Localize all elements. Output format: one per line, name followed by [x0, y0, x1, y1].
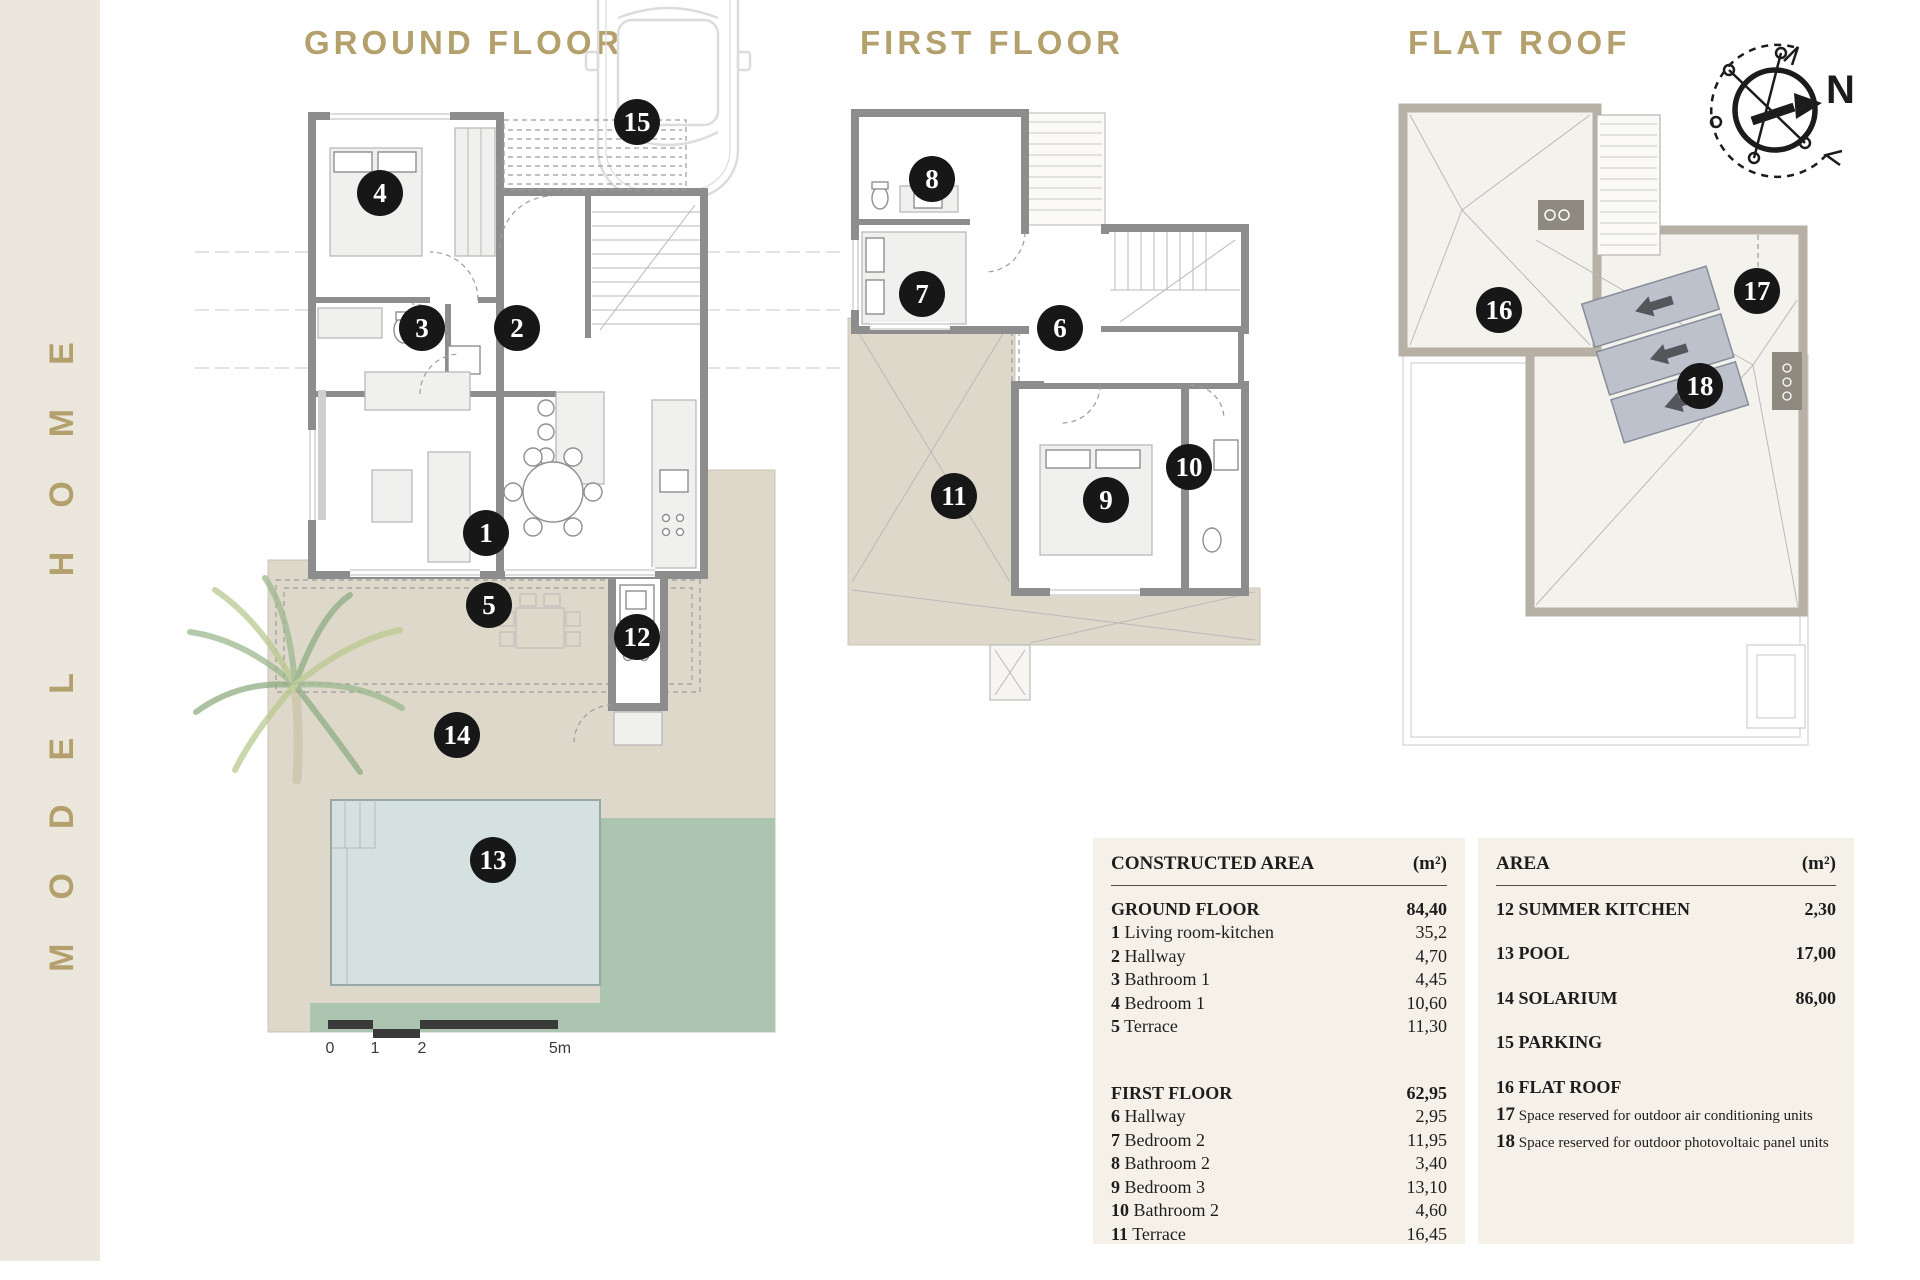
first-floor-plan: [840, 80, 1290, 720]
floorplan-sheet: MODEL HOME GROUND FLOOR FIRST FLOOR FLAT…: [0, 0, 1920, 1280]
room-marker-9-first-bedroom-3: 9: [1083, 477, 1129, 523]
flat-roof-title: FLAT ROOF: [1408, 24, 1630, 62]
room-marker-17-roof-ac-space: 17: [1734, 268, 1780, 314]
table-row: 5 Terrace11,30: [1111, 1015, 1447, 1039]
table-title: AREA: [1496, 852, 1550, 876]
brand-logo: MODEL HOME: [20, 230, 104, 1040]
constructed-table-body: GROUND FLOOR84,401 Living room-kitchen35…: [1111, 898, 1447, 1247]
table-unit: (m²): [1413, 852, 1447, 876]
scale-segment: [328, 1020, 373, 1029]
ground-floor-plan: [150, 0, 950, 1070]
table-row: 1 Living room-kitchen35,2: [1111, 921, 1447, 945]
table-row: 4 Bedroom 110,60: [1111, 992, 1447, 1016]
scale-segment: [373, 1029, 420, 1038]
room-marker-4-ground-bedroom-1: 4: [357, 170, 403, 216]
table-row: 2 Hallway4,70: [1111, 945, 1447, 969]
table-row: 13 POOL17,00: [1496, 942, 1836, 966]
table-row: 15 PARKING: [1496, 1031, 1836, 1055]
room-marker-7-first-bedroom-2: 7: [899, 271, 945, 317]
scale-label: 5m: [549, 1040, 571, 1058]
room-marker-18-roof-photovoltaic-space: 18: [1677, 363, 1723, 409]
room-marker-14-ground-solarium: 14: [434, 712, 480, 758]
room-marker-3-ground-bathroom-1: 3: [399, 305, 445, 351]
compass-north-label: N: [1826, 68, 1855, 113]
scale-label: 1: [371, 1040, 380, 1058]
area-table-header: AREA (m²): [1496, 852, 1836, 886]
table-row: 9 Bedroom 313,10: [1111, 1176, 1447, 1200]
table-row: 3 Bathroom 14,45: [1111, 968, 1447, 992]
room-marker-12-ground-summer-kitchen: 12: [614, 614, 660, 660]
room-marker-8-first-bathroom-2: 8: [909, 156, 955, 202]
room-marker-2-ground-hallway: 2: [494, 305, 540, 351]
room-marker-6-first-hallway: 6: [1037, 305, 1083, 351]
table-row: 11 Terrace16,45: [1111, 1223, 1447, 1247]
room-marker-16-roof-flat-roof: 16: [1476, 287, 1522, 333]
sidebar: MODEL HOME: [0, 0, 100, 1261]
room-marker-10-first-bathroom-2b: 10: [1166, 444, 1212, 490]
table-row: 16 FLAT ROOF: [1496, 1076, 1836, 1100]
table-row: 18 Space reserved for outdoor photovolta…: [1496, 1132, 1836, 1153]
room-marker-5-ground-terrace: 5: [466, 582, 512, 628]
table-row: 17 Space reserved for outdoor air condit…: [1496, 1105, 1836, 1126]
table-row: FIRST FLOOR62,95: [1111, 1082, 1447, 1106]
scale-label: 0: [326, 1040, 335, 1058]
pool-area: [331, 800, 600, 985]
scale-segment: [420, 1020, 558, 1029]
scale-label: 2: [418, 1040, 427, 1058]
table-row: 6 Hallway2,95: [1111, 1105, 1447, 1129]
table-title: CONSTRUCTED AREA: [1111, 852, 1314, 876]
constructed-area-table-header: CONSTRUCTED AREA (m²): [1111, 852, 1447, 886]
constructed-area-table: CONSTRUCTED AREA (m²) GROUND FLOOR84,401…: [1093, 838, 1465, 1244]
table-row: 8 Bathroom 23,40: [1111, 1152, 1447, 1176]
area-table-body: 12 SUMMER KITCHEN2,3013 POOL17,0014 SOLA…: [1496, 898, 1836, 1154]
car-outline: [586, 0, 750, 198]
room-marker-1-ground-living-room-kitchen: 1: [463, 510, 509, 556]
table-row: 14 SOLARIUM86,00: [1496, 987, 1836, 1011]
table-unit: (m²): [1802, 852, 1836, 876]
table-row: 12 SUMMER KITCHEN2,30: [1496, 898, 1836, 922]
room-marker-15-ground-parking: 15: [614, 99, 660, 145]
table-row: GROUND FLOOR84,40: [1111, 898, 1447, 922]
room-marker-13-ground-pool: 13: [470, 837, 516, 883]
table-row: 7 Bedroom 211,95: [1111, 1129, 1447, 1153]
table-row: 10 Bathroom 24,60: [1111, 1199, 1447, 1223]
room-marker-11-first-terrace: 11: [931, 473, 977, 519]
area-table: AREA (m²) 12 SUMMER KITCHEN2,3013 POOL17…: [1478, 838, 1854, 1244]
